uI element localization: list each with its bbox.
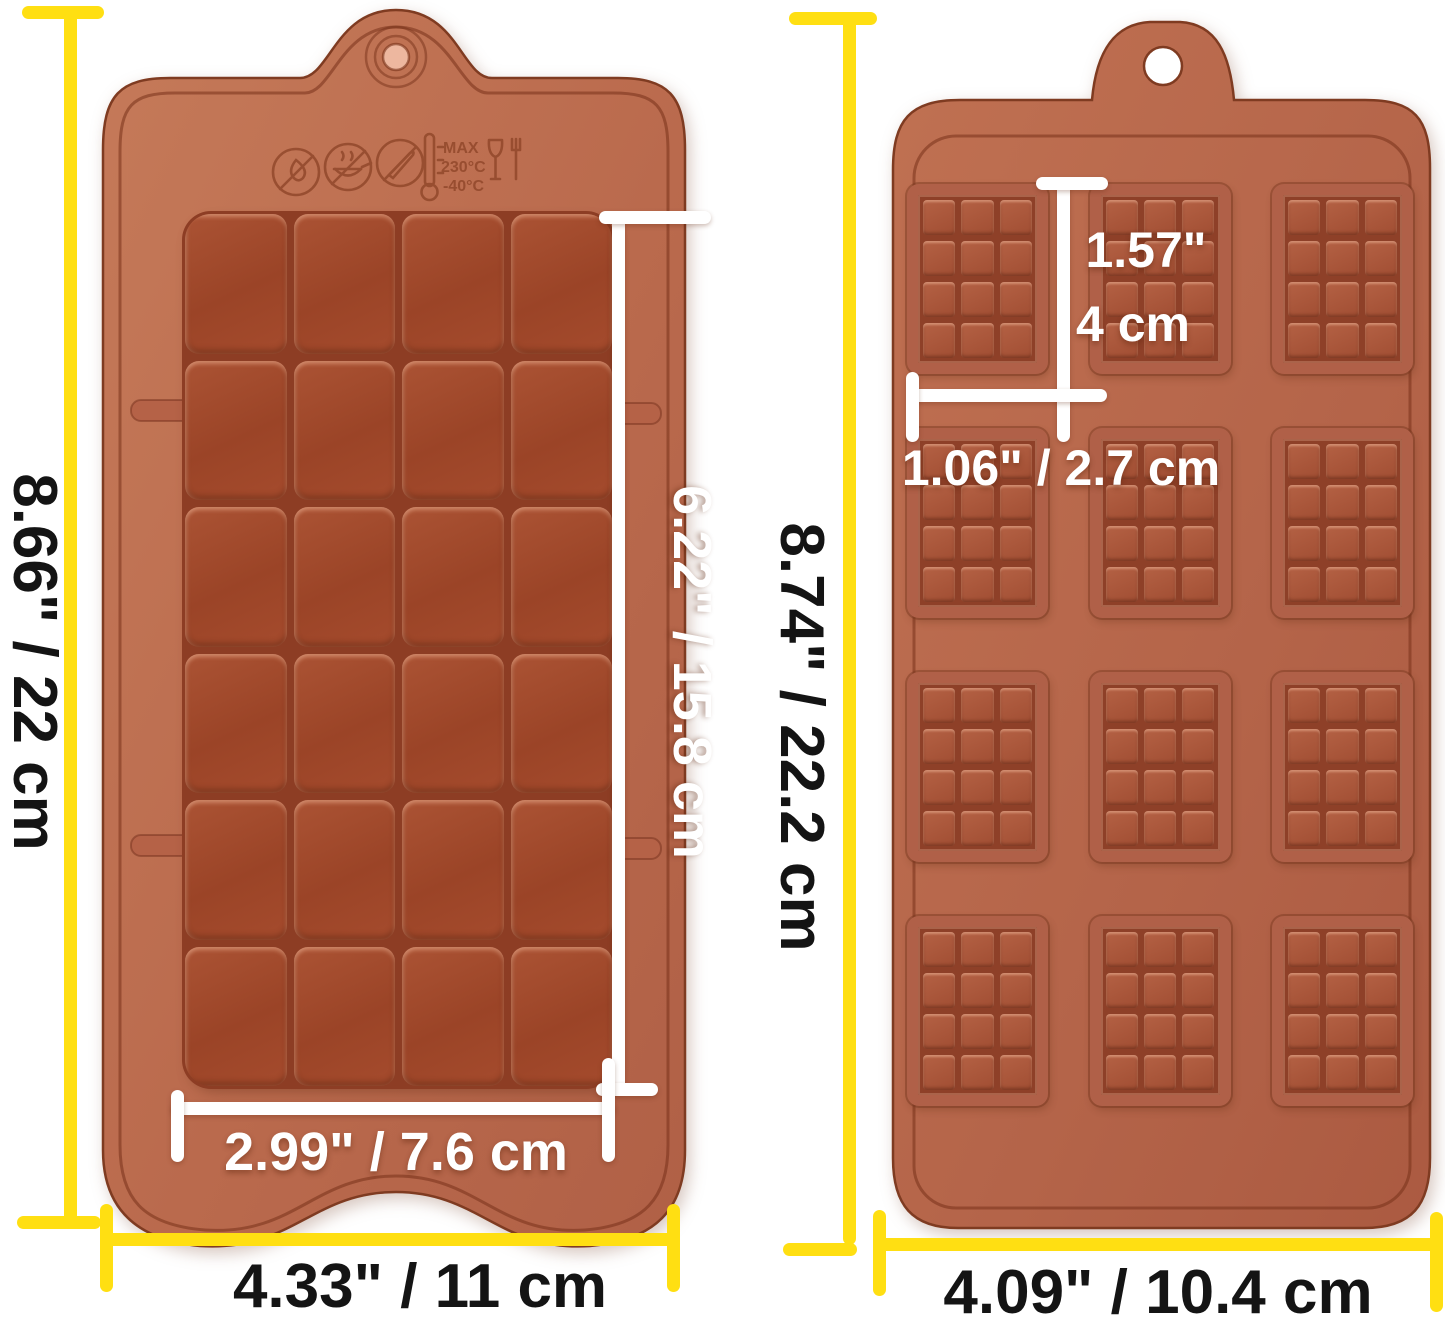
- mini-bar-chunk: [961, 973, 993, 1008]
- mini-bar-chunk: [1326, 526, 1358, 561]
- mini-bar-height-label-cm: 4 cm: [1076, 299, 1190, 349]
- mini-bar-chunk: [1365, 526, 1397, 561]
- mini-bar-chunk: [1000, 282, 1032, 317]
- bar-width-label: 2.99" / 7.6 cm: [224, 1125, 568, 1179]
- mini-bar-chunk: [961, 200, 993, 235]
- mini-bar-chunk: [1326, 729, 1358, 764]
- mini-bar-chunk: [923, 729, 955, 764]
- mini-bar-chunk: [923, 1055, 955, 1090]
- embossed-max-text: MAX: [443, 140, 479, 157]
- left-mold-height-label: 8.66" / 22 cm: [3, 473, 65, 851]
- mini-bar-chunk: [1000, 811, 1032, 846]
- mini-bar-chunk: [923, 200, 955, 235]
- mini-bar-cavity: [907, 184, 1048, 374]
- bar-height-dim-line: [612, 216, 625, 1092]
- mini-bar-chunk: [1000, 770, 1032, 805]
- mini-bar-chunk: [1182, 932, 1214, 967]
- mini-bar-chunk: [1288, 567, 1320, 602]
- left-height-dim-cap-bottom: [17, 1216, 101, 1229]
- mini-bar-chunk: [1144, 729, 1176, 764]
- mini-bar-chunk: [1365, 241, 1397, 276]
- right-width-dim-tick-left: [873, 1210, 886, 1296]
- mini-bar-chunk: [961, 282, 993, 317]
- mini-bar-chunk: [1000, 323, 1032, 358]
- mini-bar-chunk: [1182, 729, 1214, 764]
- mini-bar-cavity: [1090, 916, 1231, 1106]
- mini-bar-chunk: [1326, 444, 1358, 479]
- break-apart-bar-cavity-grid: [185, 214, 612, 1086]
- mini-bar-chunk: [1288, 526, 1320, 561]
- mini-bar-chunk: [1365, 932, 1397, 967]
- bar-cell: [402, 361, 504, 501]
- mini-bar-chunk: [1365, 567, 1397, 602]
- bar-cell: [402, 654, 504, 794]
- mini-bar-chunk: [961, 567, 993, 602]
- product-dimension-image: MAX 230°C -40°C 8.66" / 22 cm 4.33" / 11…: [0, 0, 1445, 1320]
- mini-bar-chunk: [1288, 932, 1320, 967]
- mini-bar-chunk: [1000, 241, 1032, 276]
- mini-bar-chunk: [923, 282, 955, 317]
- mini-bar-chunk: [1326, 770, 1358, 805]
- mini-bar-cavity: [1272, 672, 1413, 862]
- bar-cell: [511, 800, 613, 940]
- mini-bar-chunk: [1182, 973, 1214, 1008]
- mini-bar-chunk: [1365, 973, 1397, 1008]
- mini-bar-chunk: [923, 323, 955, 358]
- left-height-dim-cap-top: [22, 6, 104, 19]
- mini-bar-chunk: [1106, 1055, 1138, 1090]
- bar-cell: [402, 507, 504, 647]
- bar-cell: [511, 654, 613, 794]
- mini-bar-cavity: [907, 916, 1048, 1106]
- bar-cell: [185, 507, 287, 647]
- mini-bar-chunk: [1326, 932, 1358, 967]
- mini-bar-chunk: [1288, 444, 1320, 479]
- right-width-dim-tick-right: [1430, 1212, 1443, 1312]
- bar-cell: [185, 361, 287, 501]
- mini-bar-height-dim-line: [1057, 180, 1070, 442]
- mini-bar-chunk: [961, 770, 993, 805]
- mini-bar-chunk: [1000, 200, 1032, 235]
- mini-bar-chunk: [1144, 973, 1176, 1008]
- mini-bar-width-dim-line: [911, 389, 1107, 402]
- mini-bar-chunk: [1288, 811, 1320, 846]
- mini-bar-chunk: [1000, 526, 1032, 561]
- mini-bar-chunk: [923, 688, 955, 723]
- bar-cell: [294, 947, 396, 1087]
- mini-bar-chunk: [1365, 444, 1397, 479]
- mini-bar-chunk: [1288, 973, 1320, 1008]
- mini-bar-chunk: [1106, 811, 1138, 846]
- mini-bar-chunk: [1365, 1014, 1397, 1049]
- mini-bar-chunk: [1000, 973, 1032, 1008]
- bar-cell: [294, 800, 396, 940]
- left-mold-width-label: 4.33" / 11 cm: [233, 1256, 607, 1318]
- mini-bar-chunk: [1326, 323, 1358, 358]
- mini-bar-chunk: [1182, 1055, 1214, 1090]
- mini-bar-chunk: [1106, 932, 1138, 967]
- mini-bar-chunk: [1365, 729, 1397, 764]
- mini-bar-chunk: [1288, 1014, 1320, 1049]
- mini-bar-cavity: [1090, 672, 1231, 862]
- bar-cell: [294, 507, 396, 647]
- right-mold-height-label: 8.74" / 22.2 cm: [770, 522, 832, 951]
- mini-bar-chunk: [1326, 567, 1358, 602]
- mini-bar-chunk: [1326, 200, 1358, 235]
- mini-bar-chunk: [923, 770, 955, 805]
- hang-hole: [383, 44, 409, 70]
- mini-bar-chunk: [1144, 1014, 1176, 1049]
- mini-bar-cavity: [907, 672, 1048, 862]
- left-width-dim-tick-right: [667, 1204, 680, 1292]
- mini-bar-chunk: [961, 526, 993, 561]
- mini-bar-chunk: [1144, 770, 1176, 805]
- bar-width-dim-tick-right: [602, 1058, 615, 1162]
- mini-bar-chunk: [1000, 729, 1032, 764]
- mini-bar-chunk: [1288, 323, 1320, 358]
- mini-bar-chunk: [961, 932, 993, 967]
- embossed-temp-high-text: 230°C: [441, 159, 486, 176]
- mini-bar-chunk: [1365, 323, 1397, 358]
- bar-width-dim-tick-left: [171, 1090, 184, 1162]
- mini-bar-chunk: [1288, 1055, 1320, 1090]
- mini-bar-chunk: [1144, 567, 1176, 602]
- mini-bar-chunk: [1365, 811, 1397, 846]
- mini-bar-chunk: [1182, 526, 1214, 561]
- embossed-temp-low-text: -40°C: [443, 178, 485, 195]
- right-width-dim-line: [873, 1238, 1443, 1251]
- mini-bar-chunk: [961, 811, 993, 846]
- hang-hole: [1144, 47, 1182, 85]
- bar-height-dim-cap-top: [599, 211, 711, 224]
- mini-bar-width-label: 1.06" / 2.7 cm: [902, 443, 1220, 493]
- right-mold-width-label: 4.09" / 10.4 cm: [943, 1262, 1372, 1320]
- bar-cell: [185, 654, 287, 794]
- mini-bar-chunk: [1288, 688, 1320, 723]
- mini-bar-chunk: [1326, 282, 1358, 317]
- mini-bar-chunk: [1106, 1014, 1138, 1049]
- mini-bar-chunk: [1288, 770, 1320, 805]
- bar-width-dim-line: [171, 1102, 615, 1115]
- mini-bar-chunk: [1144, 1055, 1176, 1090]
- mini-bar-chunk: [923, 811, 955, 846]
- mini-bar-chunk: [1288, 200, 1320, 235]
- mini-bar-chunk: [961, 688, 993, 723]
- mini-bar-chunk: [1182, 770, 1214, 805]
- mini-bar-chunk: [923, 932, 955, 967]
- left-width-dim-tick-left: [100, 1204, 113, 1292]
- mini-bar-chunk: [1000, 1014, 1032, 1049]
- mini-bar-chunk: [1326, 241, 1358, 276]
- mini-bar-chunk: [1106, 729, 1138, 764]
- bar-cell: [185, 214, 287, 354]
- mini-bar-chunk: [1365, 770, 1397, 805]
- mini-bar-chunk: [1106, 526, 1138, 561]
- mini-bar-chunk: [1326, 811, 1358, 846]
- side-tab: [131, 400, 193, 421]
- bar-cell: [511, 361, 613, 501]
- mini-bar-chunk: [1365, 200, 1397, 235]
- bar-cell: [294, 361, 396, 501]
- bar-cell: [294, 654, 396, 794]
- bar-cell: [511, 947, 613, 1087]
- mini-bar-width-dim-tick-left: [906, 372, 919, 442]
- mini-bar-chunk: [1326, 1055, 1358, 1090]
- mini-bar-chunk: [1365, 688, 1397, 723]
- bar-cell: [294, 214, 396, 354]
- bar-cell: [402, 947, 504, 1087]
- mini-bar-chunk: [1365, 485, 1397, 520]
- bar-cell: [185, 800, 287, 940]
- mini-bar-chunk: [1288, 485, 1320, 520]
- mini-bar-chunk: [1326, 1014, 1358, 1049]
- mini-bar-chunk: [1326, 485, 1358, 520]
- right-height-dim-cap-top: [789, 12, 877, 25]
- mini-bar-chunk: [923, 241, 955, 276]
- bar-cell: [185, 947, 287, 1087]
- mini-bar-cavity: [1272, 428, 1413, 618]
- right-height-dim-line: [843, 14, 856, 1245]
- mini-bar-chunk: [1106, 567, 1138, 602]
- mini-bar-chunk: [1182, 567, 1214, 602]
- bar-height-label: 6.22" / 15.8 cm: [665, 485, 719, 859]
- mini-bar-chunk: [1106, 973, 1138, 1008]
- mini-bar-height-dim-cap-top: [1036, 177, 1108, 190]
- mini-bar-chunk: [1144, 811, 1176, 846]
- mini-bar-cavity: [1272, 916, 1413, 1106]
- mini-bar-chunk: [1326, 973, 1358, 1008]
- mini-bar-height-label-inches: 1.57": [1085, 225, 1206, 275]
- mini-bar-chunk: [961, 323, 993, 358]
- mini-bar-chunk: [1288, 282, 1320, 317]
- mini-bar-chunk: [1106, 688, 1138, 723]
- mini-bar-chunk: [1000, 688, 1032, 723]
- mini-bar-chunk: [1326, 688, 1358, 723]
- mini-bar-chunk: [1288, 729, 1320, 764]
- mini-bar-chunk: [923, 567, 955, 602]
- mini-bar-chunk: [961, 1055, 993, 1090]
- mini-bar-chunk: [961, 729, 993, 764]
- mini-bar-chunk: [1365, 282, 1397, 317]
- mini-bar-chunk: [1182, 811, 1214, 846]
- mini-bar-chunk: [923, 1014, 955, 1049]
- mini-bar-chunk: [1144, 526, 1176, 561]
- mini-bar-chunk: [1182, 1014, 1214, 1049]
- bar-cell: [402, 800, 504, 940]
- mini-bar-chunk: [1365, 1055, 1397, 1090]
- mini-bar-chunk: [1144, 932, 1176, 967]
- right-height-dim-cap-bottom: [783, 1243, 857, 1256]
- mini-bar-chunk: [923, 526, 955, 561]
- mini-bar-chunk: [1182, 688, 1214, 723]
- bar-cell: [402, 214, 504, 354]
- mini-bar-chunk: [961, 1014, 993, 1049]
- mini-bar-chunk: [961, 241, 993, 276]
- side-tab: [131, 835, 193, 856]
- mini-bar-chunk: [1000, 1055, 1032, 1090]
- mini-bar-chunk: [1000, 932, 1032, 967]
- mini-bar-chunk: [923, 973, 955, 1008]
- mini-bar-chunk: [1106, 770, 1138, 805]
- mini-bar-chunk: [1288, 241, 1320, 276]
- left-width-dim-line: [100, 1233, 680, 1246]
- bar-cell: [511, 214, 613, 354]
- bar-cell: [511, 507, 613, 647]
- mini-bar-cavity: [1272, 184, 1413, 374]
- mini-bar-chunk: [1000, 567, 1032, 602]
- mini-bar-chunk: [1144, 688, 1176, 723]
